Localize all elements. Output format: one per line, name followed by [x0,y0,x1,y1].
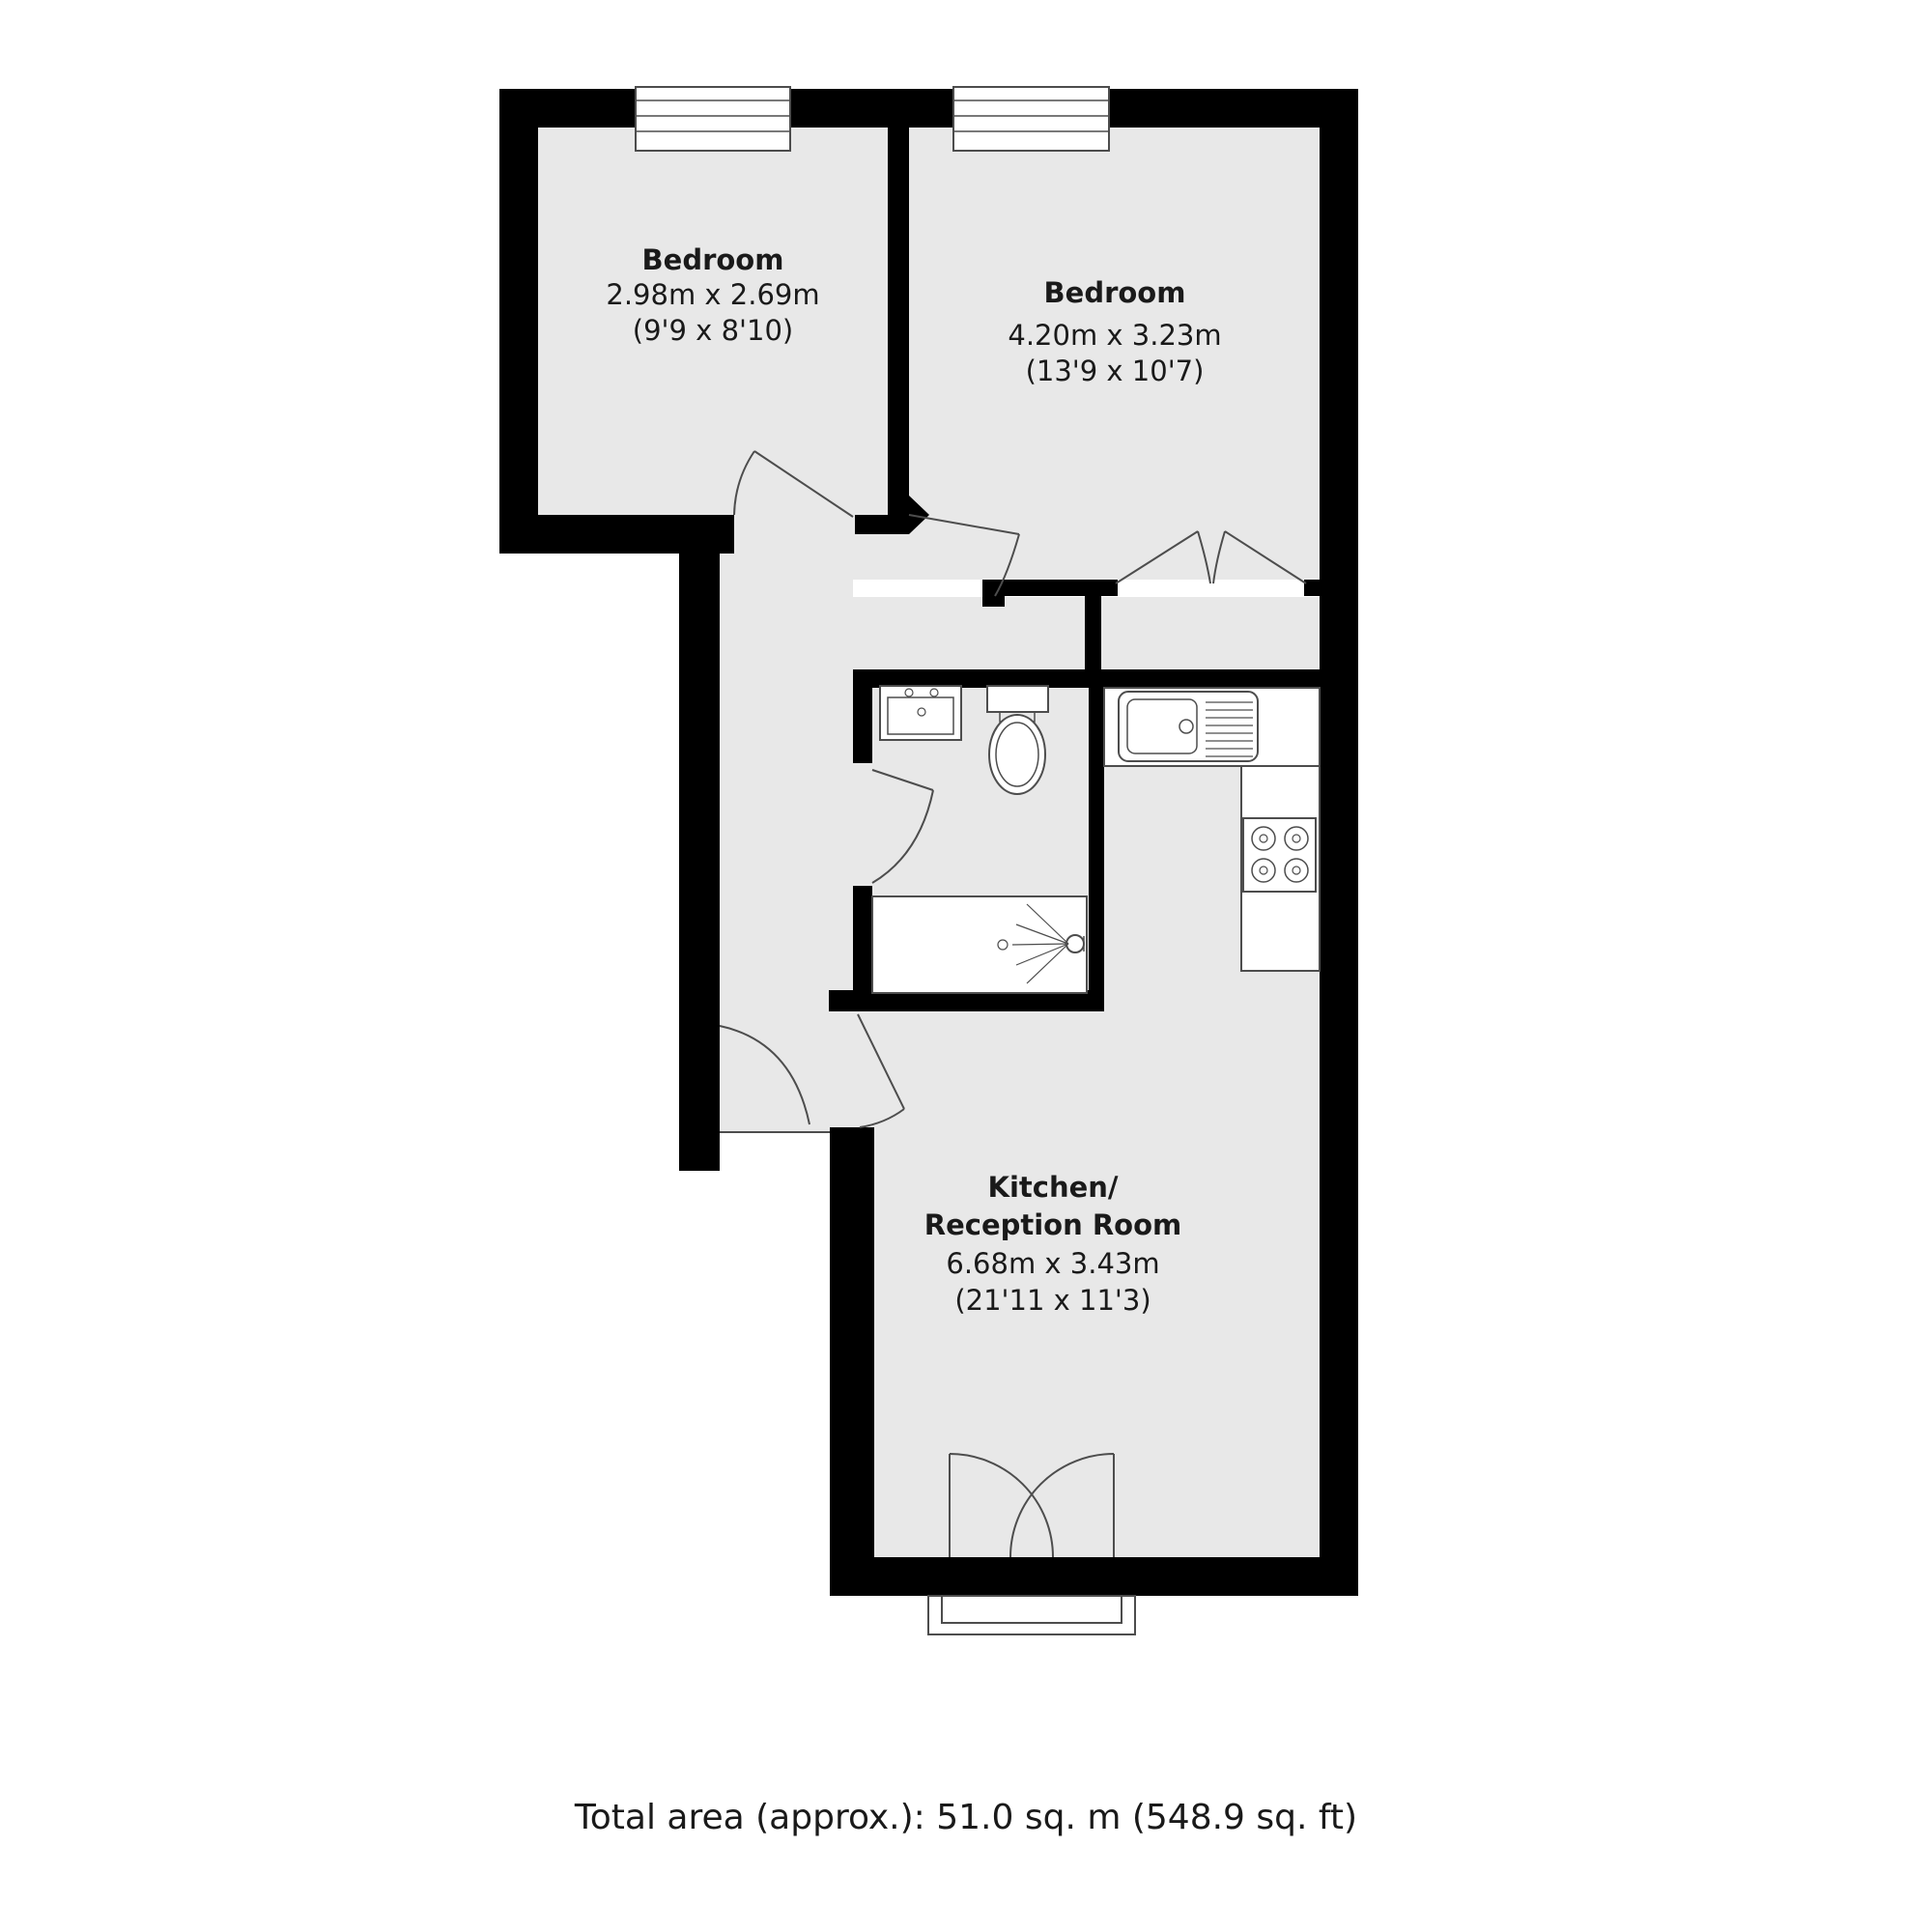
bedroom-2-floor [909,128,1320,580]
wall-reception-left [830,1127,874,1596]
window-icon [636,87,790,151]
bedroom-1-door-gap [734,515,855,536]
wall-bathroom-left-lower [853,886,872,993]
kitchen-name-line2: Reception Room [924,1208,1181,1241]
floorplan-page: Bedroom 2.98m x 2.69m (9'9 x 8'10) Bedro… [0,0,1932,1932]
bedroom-2-size-imperial: (13'9 x 10'7) [1026,355,1205,387]
wall-vestibule-right [1085,596,1101,673]
wall-bathroom-right [1089,688,1104,1011]
bathroom-sink-icon [880,686,961,740]
kitchen-size-metric: 6.68m x 3.43m [946,1247,1159,1280]
bathroom-door-gap [853,763,872,886]
wall-bedroom2-bottom-left [992,580,1118,596]
wall-bedroom2-bottom-right [1304,580,1320,596]
kitchen-sink-icon [1119,692,1258,761]
hob-icon [1243,818,1316,892]
wall-right [1320,89,1358,1596]
shower-icon [872,896,1087,993]
bedroom-1-size-imperial: (9'9 x 8'10) [633,314,793,347]
wall-hall-left [679,554,720,1171]
bedroom-2-size-metric: 4.20m x 3.23m [1008,319,1221,352]
wall-bedroom-divider [888,128,909,496]
wall-top [499,89,1358,128]
window-bedroom-2 [953,87,1109,151]
bedroom-1-name: Bedroom [642,243,784,276]
reception-door-gap [830,1011,874,1127]
kitchen-name-line1: Kitchen/ [987,1171,1118,1204]
bedroom-2-name: Bedroom [1044,276,1186,309]
window-bedroom-1 [636,87,790,151]
wall-bedroom1-bottom [499,515,734,554]
window-icon [953,87,1109,151]
wall-bathroom-left-upper [853,688,872,763]
bedroom-1-size-metric: 2.98m x 2.69m [606,278,819,311]
kitchen-size-imperial: (21'11 x 11'3) [954,1284,1151,1317]
toilet-icon [987,686,1048,794]
wall-bottom [830,1557,1358,1596]
wall-left-bedroom1 [499,89,538,554]
patio-step-icon [928,1596,1135,1634]
floorplan-drawing: Bedroom 2.98m x 2.69m (9'9 x 8'10) Bedro… [0,0,1932,1932]
total-area-label: Total area (approx.): 51.0 sq. m (548.9 … [574,1798,1357,1837]
